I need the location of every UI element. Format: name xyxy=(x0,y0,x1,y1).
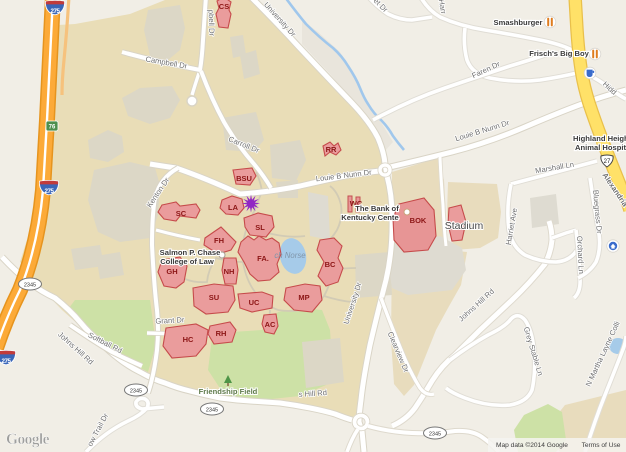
svg-text:HC: HC xyxy=(183,335,194,344)
svg-text:ch Norse: ch Norse xyxy=(274,251,306,260)
svg-text:Terms of Use: Terms of Use xyxy=(582,442,621,449)
svg-text:BC: BC xyxy=(325,260,336,269)
svg-text:Frisch's Big Boy: Frisch's Big Boy xyxy=(529,49,589,58)
svg-text:Smashburger: Smashburger xyxy=(494,18,543,27)
svg-text:Stadium: Stadium xyxy=(445,220,484,232)
svg-text:MP: MP xyxy=(298,293,309,302)
svg-text:2345: 2345 xyxy=(429,432,441,438)
svg-text:Animal Hospit: Animal Hospit xyxy=(575,143,626,152)
svg-text:The Bank of: The Bank of xyxy=(355,204,399,213)
svg-text:LA: LA xyxy=(228,203,239,212)
svg-text:UC: UC xyxy=(249,298,260,307)
svg-text:GH: GH xyxy=(166,267,177,276)
svg-text:Highland Heigh: Highland Heigh xyxy=(573,134,626,143)
svg-text:CS: CS xyxy=(219,2,229,11)
svg-text:FH: FH xyxy=(214,236,224,245)
svg-text:SL: SL xyxy=(255,223,265,232)
svg-text:BOK: BOK xyxy=(410,216,427,225)
svg-text:FA.: FA. xyxy=(257,254,269,263)
svg-text:2345: 2345 xyxy=(206,408,218,414)
svg-text:275: 275 xyxy=(1,358,11,365)
svg-text:275: 275 xyxy=(50,8,60,15)
svg-text:27: 27 xyxy=(604,159,611,165)
svg-text:Grant Dr: Grant Dr xyxy=(155,315,185,326)
svg-text:2345: 2345 xyxy=(130,389,142,395)
svg-text:AC: AC xyxy=(265,320,276,329)
svg-text:Google: Google xyxy=(6,431,50,448)
svg-text:Salmon P. Chase: Salmon P. Chase xyxy=(160,248,221,257)
svg-text:SU: SU xyxy=(209,293,219,302)
svg-text:Map data ©2014 Google: Map data ©2014 Google xyxy=(496,441,568,449)
svg-text:SC: SC xyxy=(176,209,187,218)
svg-text:Friendship Field: Friendship Field xyxy=(199,387,258,396)
svg-text:pbell Dr: pbell Dr xyxy=(207,10,217,37)
svg-text:College of Law: College of Law xyxy=(160,257,214,266)
svg-text:RR: RR xyxy=(326,145,337,154)
svg-text:76: 76 xyxy=(49,125,56,131)
svg-text:Kentucky Cente: Kentucky Cente xyxy=(341,213,398,222)
svg-text:BSU: BSU xyxy=(236,174,252,183)
svg-text:RH: RH xyxy=(216,329,227,338)
svg-text:275: 275 xyxy=(44,188,54,195)
svg-text:2345: 2345 xyxy=(24,283,36,289)
svg-text:NH: NH xyxy=(224,267,235,276)
